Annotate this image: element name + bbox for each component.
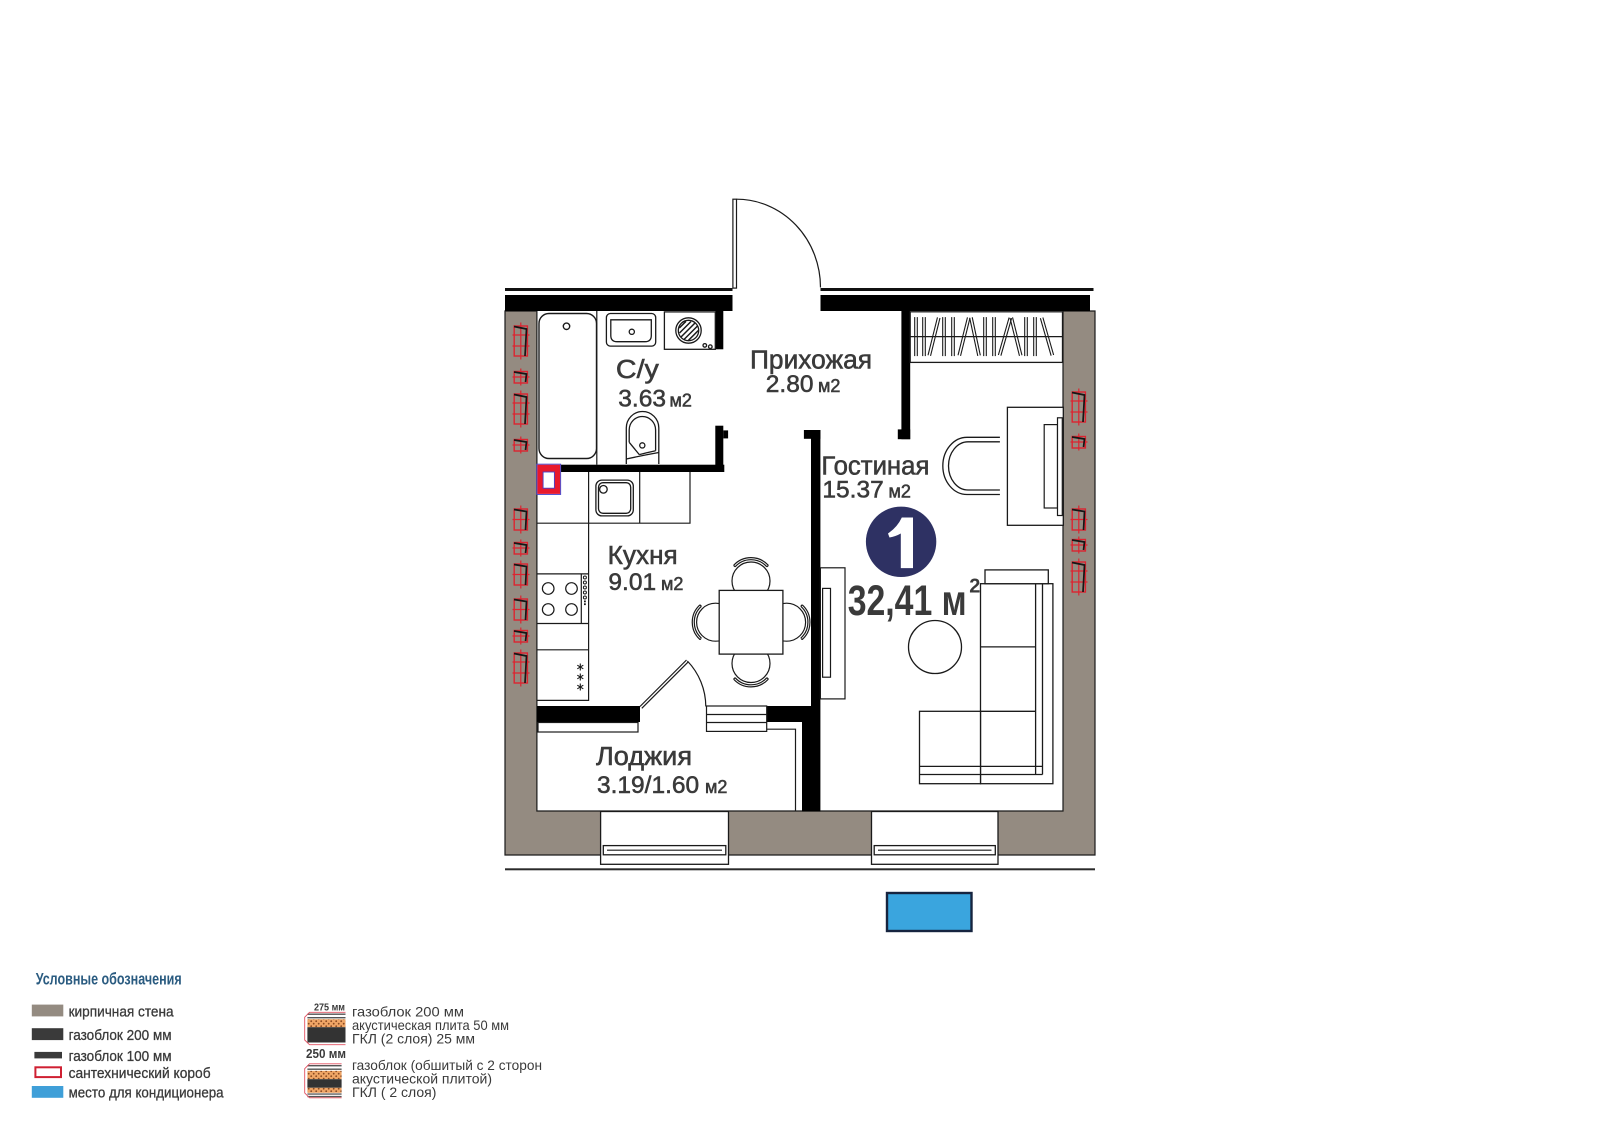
svg-text:м2: м2 [670,391,692,411]
svg-text:Кухня: Кухня [608,542,678,570]
svg-text:С/у: С/у [616,356,659,384]
svg-text:2.80: 2.80 [766,371,814,398]
svg-text:м2: м2 [889,482,911,502]
svg-text:ГКЛ ( 2 слоя): ГКЛ ( 2 слоя) [352,1084,436,1100]
svg-text:сантехнический короб: сантехнический короб [69,1065,211,1082]
svg-text:Лоджия: Лоджия [596,743,692,771]
svg-text:9.01: 9.01 [608,569,656,596]
svg-text:32,41 м: 32,41 м [848,577,967,625]
svg-text:м2: м2 [705,777,727,797]
svg-text:3.19/1.60: 3.19/1.60 [597,772,699,799]
svg-text:Условные обозначения: Условные обозначения [36,971,182,989]
svg-text:15.37: 15.37 [822,477,883,504]
svg-text:3.63: 3.63 [618,386,666,413]
svg-text:газоблок 100 мм: газоблок 100 мм [69,1048,172,1065]
svg-text:кирпичная стена: кирпичная стена [69,1003,175,1020]
svg-text:м2: м2 [661,574,683,594]
svg-text:место для кондиционера: место для кондиционера [69,1085,225,1102]
svg-text:ГКЛ (2 слоя) 25 мм: ГКЛ (2 слоя) 25 мм [352,1031,475,1047]
svg-text:275 мм: 275 мм [314,1002,345,1014]
svg-text:2: 2 [969,575,980,597]
svg-text:газоблок 200 мм: газоблок 200 мм [69,1027,172,1044]
svg-text:250 мм: 250 мм [306,1047,346,1061]
svg-text:м2: м2 [818,376,840,396]
